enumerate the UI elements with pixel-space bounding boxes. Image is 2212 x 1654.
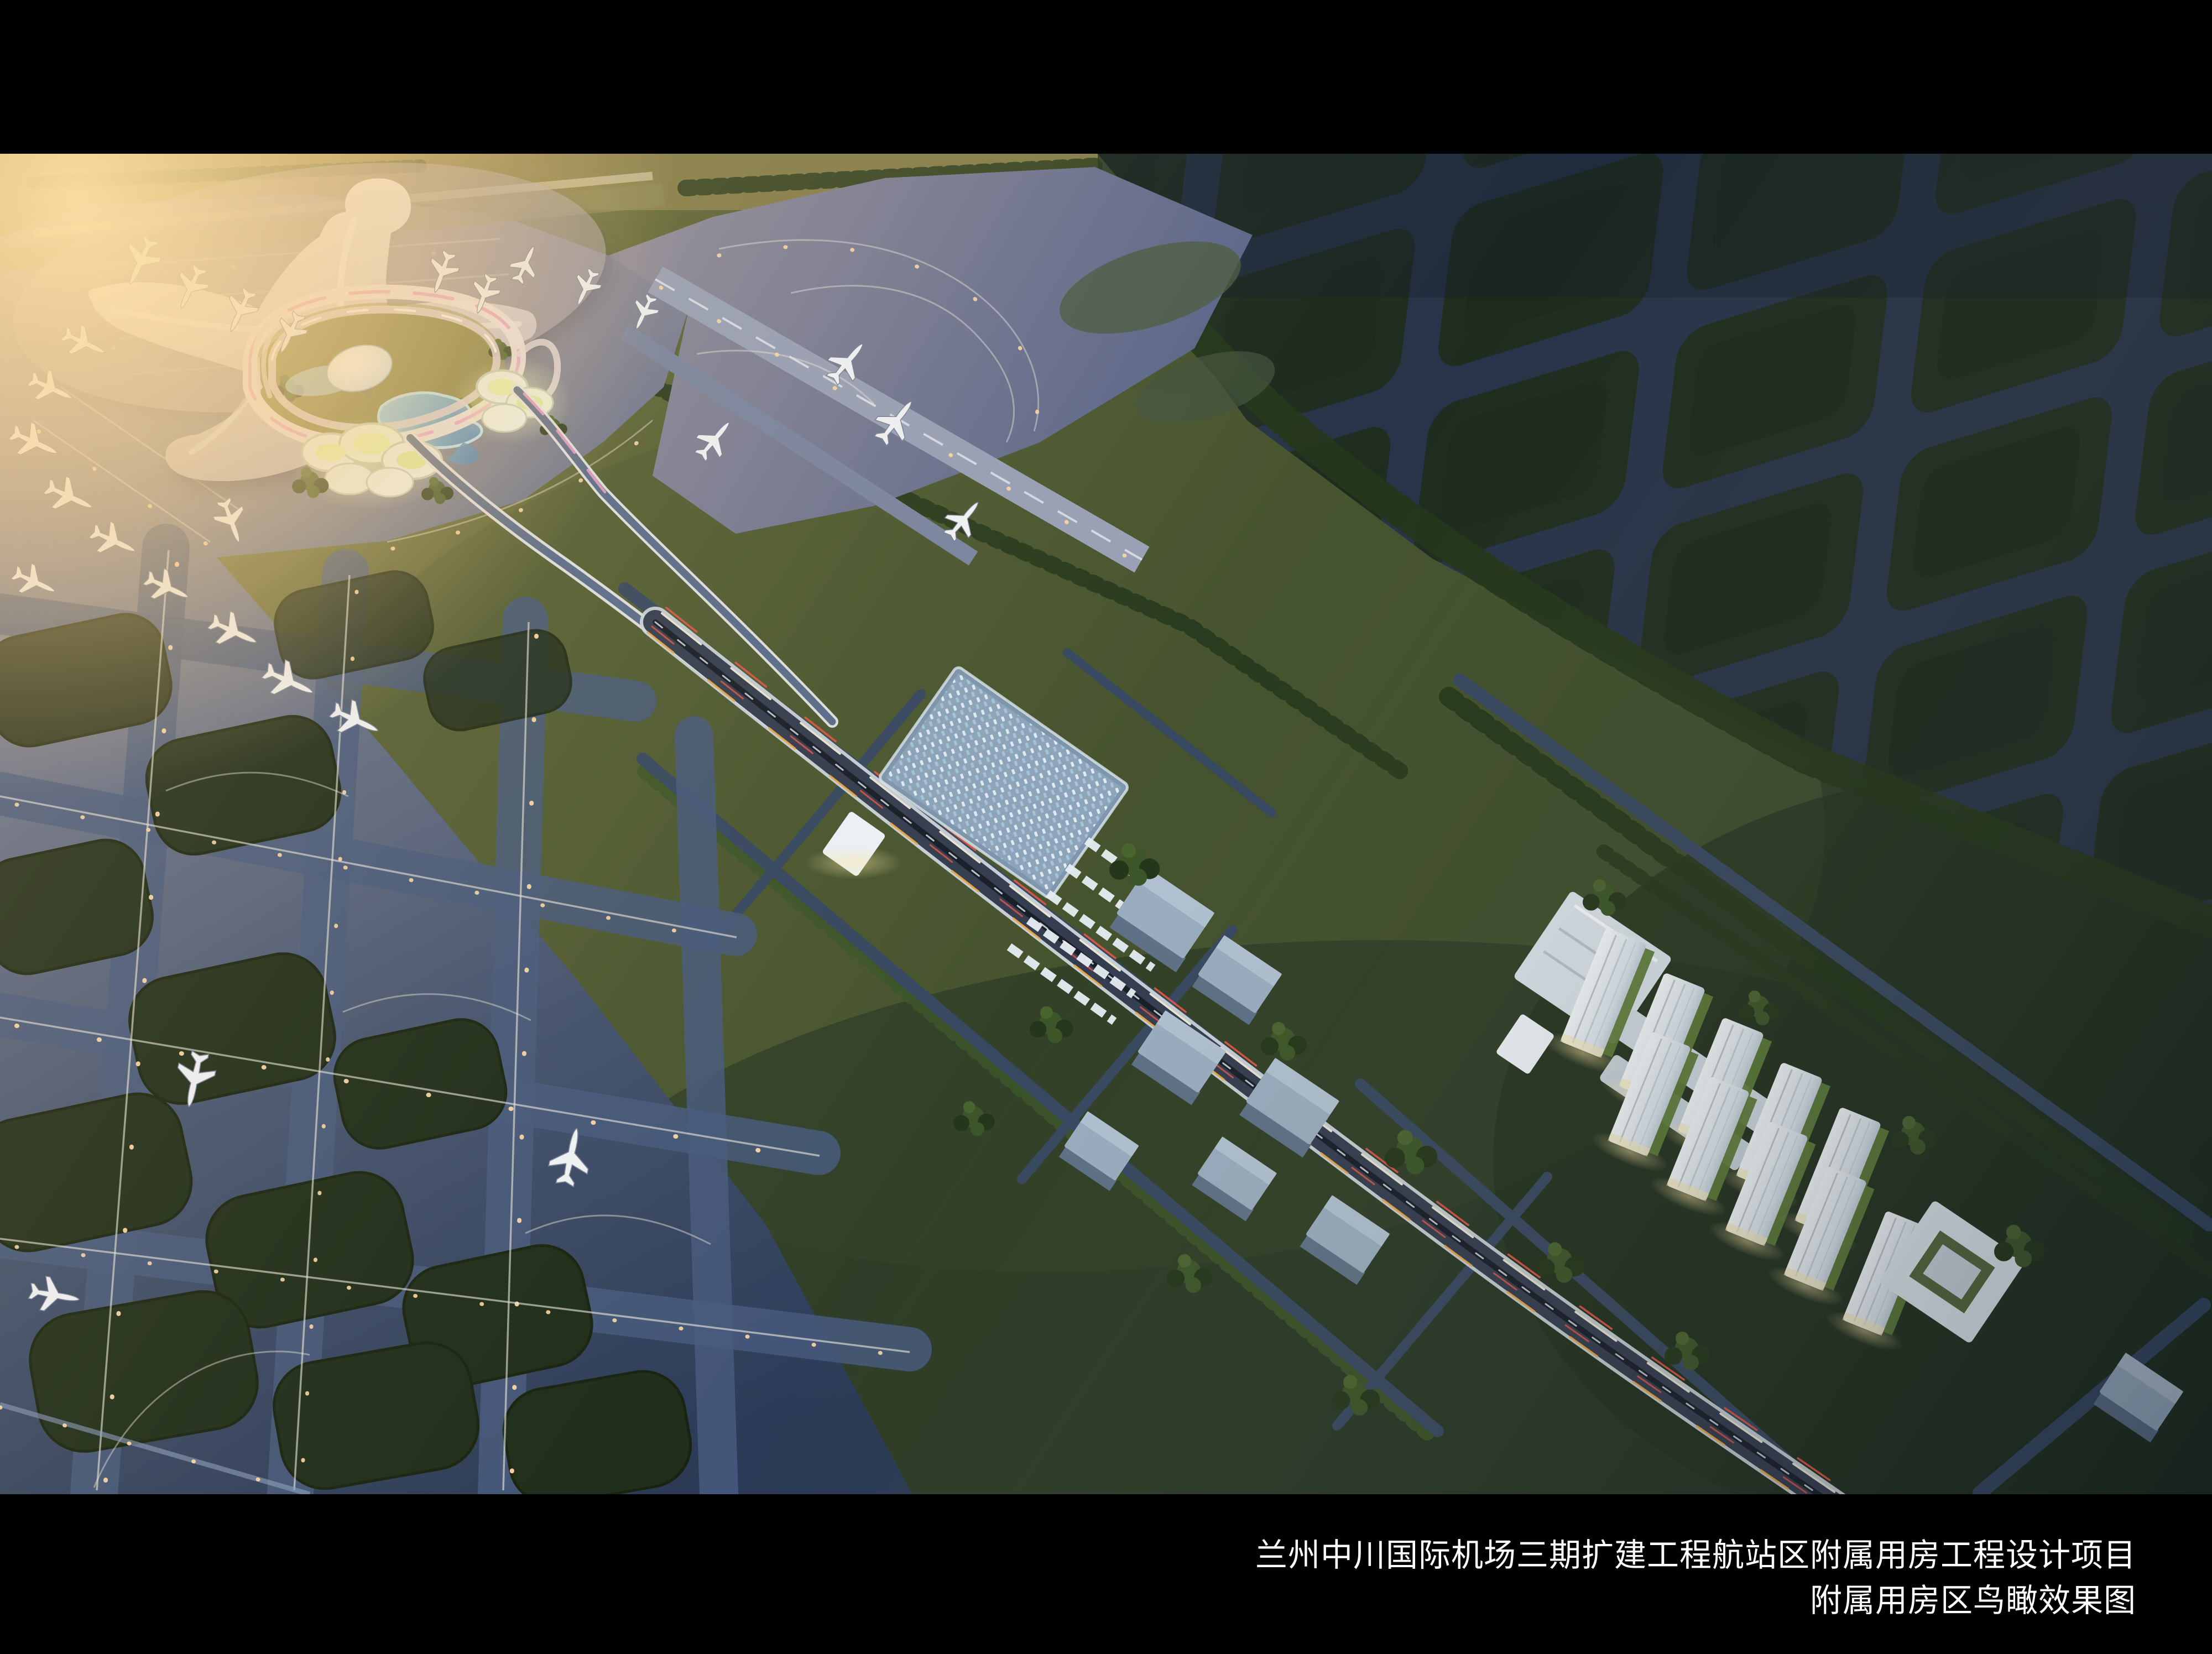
sunset-glow bbox=[0, 154, 1217, 983]
aerial-rendering-scene bbox=[0, 0, 2212, 1654]
caption-line-1: 兰州中川国际机场三期扩建工程航站区附属用房工程设计项目 bbox=[1255, 1533, 2136, 1578]
caption-line-2: 附属用房区鸟瞰效果图 bbox=[1255, 1578, 2136, 1624]
rendering-page: 兰州中川国际机场三期扩建工程航站区附属用房工程设计项目 附属用房区鸟瞰效果图 bbox=[0, 0, 2212, 1654]
caption: 兰州中川国际机场三期扩建工程航站区附属用房工程设计项目 附属用房区鸟瞰效果图 bbox=[1255, 1533, 2136, 1624]
letterbox-top bbox=[0, 0, 2212, 154]
atmosphere-overlays bbox=[0, 154, 2212, 1494]
